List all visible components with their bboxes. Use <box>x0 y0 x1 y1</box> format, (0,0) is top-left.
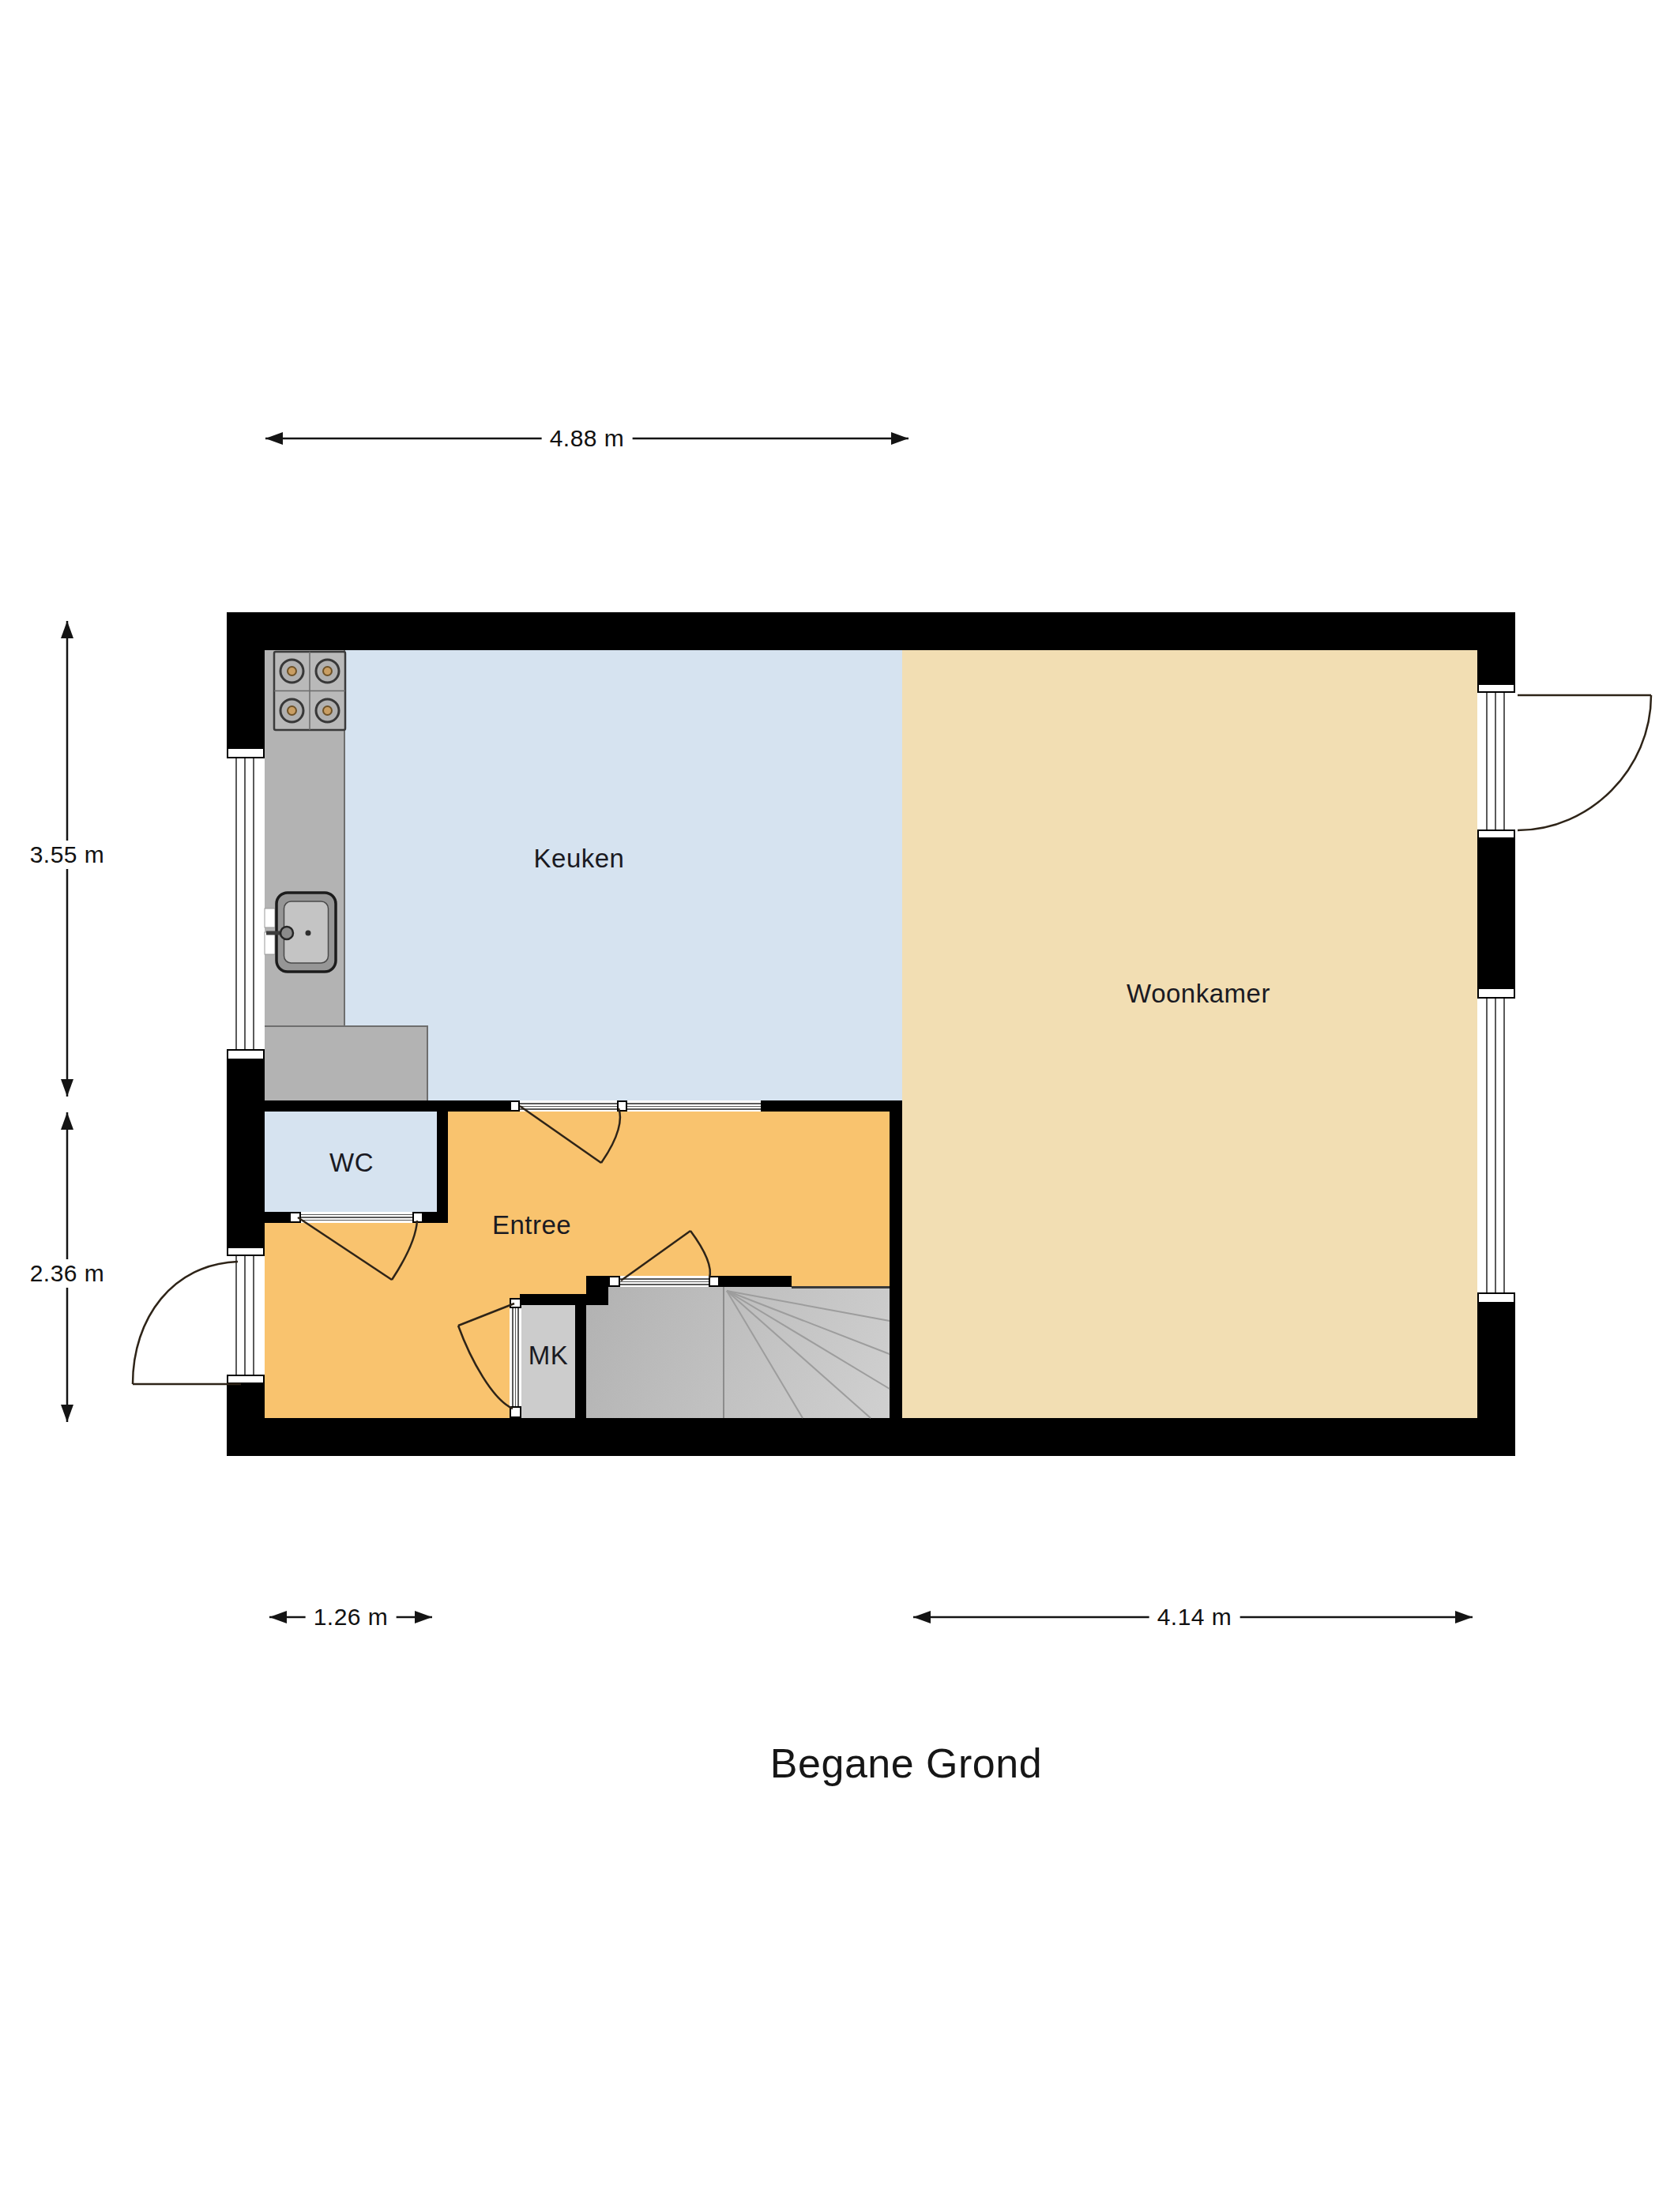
window-jamb <box>227 747 265 758</box>
staircase-area <box>586 1287 890 1418</box>
dimension-label-bottom-left: 1.26 m <box>306 1603 397 1631</box>
door-jamb <box>227 1375 265 1384</box>
dimension-label-bottom-right: 4.14 m <box>1149 1603 1240 1631</box>
wc-door-frame <box>301 1212 412 1223</box>
front-door-frame <box>227 1256 265 1375</box>
door-jamb <box>510 1100 520 1112</box>
floorplan-canvas: 4.88 m 3.55 m 2.36 m 1.26 m 4.14 m Keuke… <box>0 0 1659 2212</box>
wall-right-middle <box>1477 839 1515 987</box>
wall-entree-woonkamer <box>890 1100 902 1418</box>
dimension-label-top: 4.88 m <box>542 424 633 453</box>
garden-door-frame <box>1477 693 1515 829</box>
door-jamb <box>709 1276 720 1287</box>
stairs-open-edge <box>792 1286 890 1288</box>
stairs-door-frame <box>620 1276 709 1287</box>
wall-keuken-entree-right <box>761 1100 890 1112</box>
wall-wc-right <box>437 1100 448 1223</box>
keuken-entree-door-frame <box>520 1100 617 1112</box>
wall-bottom <box>227 1418 1515 1456</box>
wall-right-lower <box>1477 1303 1515 1418</box>
door-jamb <box>1477 683 1515 693</box>
wall-right-upper <box>1477 650 1515 683</box>
kitchen-counter-corner <box>265 1025 428 1100</box>
dimension-label-left-upper: 3.55 m <box>22 841 113 869</box>
front-door-swing-icon <box>133 1262 241 1384</box>
window-jamb <box>227 1049 265 1060</box>
kitchen-window <box>227 747 265 1060</box>
room-area-woonkamer <box>902 650 1477 1418</box>
door-jamb <box>1477 829 1515 839</box>
wall-left-lower <box>227 1384 265 1418</box>
door-jamb <box>227 1247 265 1256</box>
room-label-woonkamer: Woonkamer <box>1127 979 1270 1009</box>
woonkamer-window <box>1477 999 1515 1292</box>
wall-keuken-entree-left <box>265 1100 510 1112</box>
wall-stairs-top-right <box>720 1276 792 1287</box>
door-jamb <box>608 1276 620 1287</box>
wall-wc-bottom-right <box>423 1212 448 1223</box>
door-jamb <box>289 1212 301 1223</box>
wall-mk-right <box>575 1294 586 1418</box>
wall-stairs-top-left <box>586 1276 608 1305</box>
window-jamb <box>1477 1292 1515 1303</box>
door-jamb <box>617 1100 627 1112</box>
wall-wc-bottom-left <box>265 1212 289 1223</box>
wall-top <box>227 612 1515 650</box>
room-label-entree: Entree <box>492 1210 571 1240</box>
room-label-mk: MK <box>529 1341 569 1371</box>
room-label-wc: WC <box>329 1148 374 1178</box>
door-jamb <box>412 1212 423 1223</box>
garden-door-swing-icon <box>1518 695 1651 830</box>
page-title: Begane Grond <box>770 1740 1042 1787</box>
wall-left-upper <box>227 650 265 747</box>
dimension-label-left-lower: 2.36 m <box>22 1259 113 1288</box>
window-jamb <box>1477 987 1515 999</box>
door-jamb <box>510 1298 521 1308</box>
mk-door-frame <box>510 1308 521 1406</box>
wall-left-middle <box>227 1060 265 1247</box>
keuken-entree-window <box>627 1100 761 1112</box>
door-jamb <box>510 1406 521 1418</box>
room-label-keuken: Keuken <box>534 844 625 874</box>
